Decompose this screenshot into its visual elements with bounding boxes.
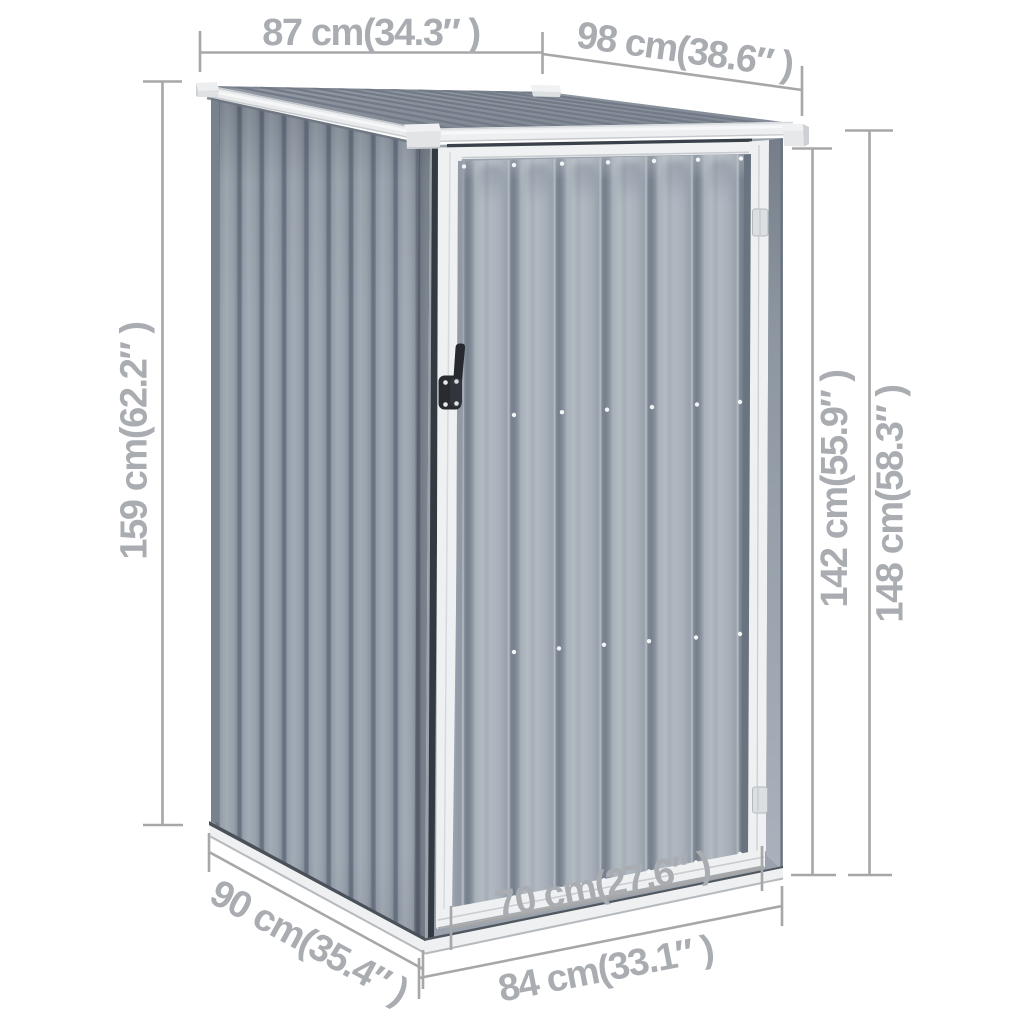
svg-text:148 cm(58.3″ ): 148 cm(58.3″ ) [870,385,912,622]
svg-text:87 cm(34.3″ ): 87 cm(34.3″ ) [262,12,480,54]
svg-text:159 cm(62.2″ ): 159 cm(62.2″ ) [114,322,156,559]
svg-text:142 cm(55.9″ ): 142 cm(55.9″ ) [814,370,856,607]
